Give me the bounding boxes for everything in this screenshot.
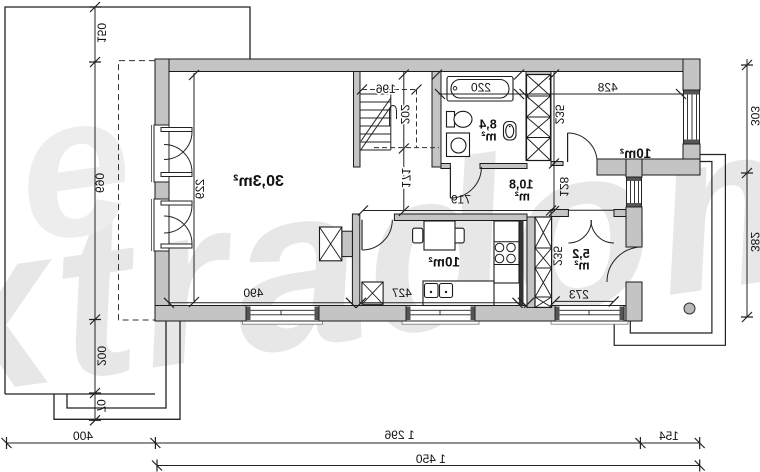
svg-text:10m²: 10m² — [428, 255, 460, 270]
svg-text:220: 220 — [471, 81, 491, 95]
svg-text:171: 171 — [399, 168, 413, 188]
svg-text:196: 196 — [375, 82, 395, 96]
svg-text:1 296: 1 296 — [384, 428, 414, 442]
svg-text:382: 382 — [748, 232, 760, 252]
svg-text:400: 400 — [73, 429, 93, 443]
svg-text:273: 273 — [569, 288, 589, 302]
svg-text:m²: m² — [515, 190, 530, 204]
svg-text:719: 719 — [451, 193, 471, 207]
svg-text:490: 490 — [243, 286, 263, 300]
svg-text:150: 150 — [95, 23, 109, 43]
svg-text:128: 128 — [557, 176, 571, 196]
svg-text:229: 229 — [193, 179, 207, 199]
svg-text:m²: m² — [481, 130, 496, 144]
svg-text:1 450: 1 450 — [416, 452, 446, 466]
svg-text:235: 235 — [553, 104, 567, 124]
svg-text:427: 427 — [392, 286, 412, 300]
svg-text:428: 428 — [597, 81, 617, 95]
svg-text:202: 202 — [398, 104, 412, 124]
svg-text:235: 235 — [551, 246, 565, 266]
svg-text:690: 690 — [93, 173, 107, 193]
svg-text:154: 154 — [659, 429, 679, 443]
svg-text:m²: m² — [574, 259, 589, 273]
svg-text:303: 303 — [748, 106, 760, 126]
svg-text:70: 70 — [94, 399, 108, 413]
svg-text:30,3m²: 30,3m² — [233, 173, 284, 190]
svg-text:200: 200 — [95, 346, 109, 366]
svg-text:10m²: 10m² — [619, 146, 651, 161]
